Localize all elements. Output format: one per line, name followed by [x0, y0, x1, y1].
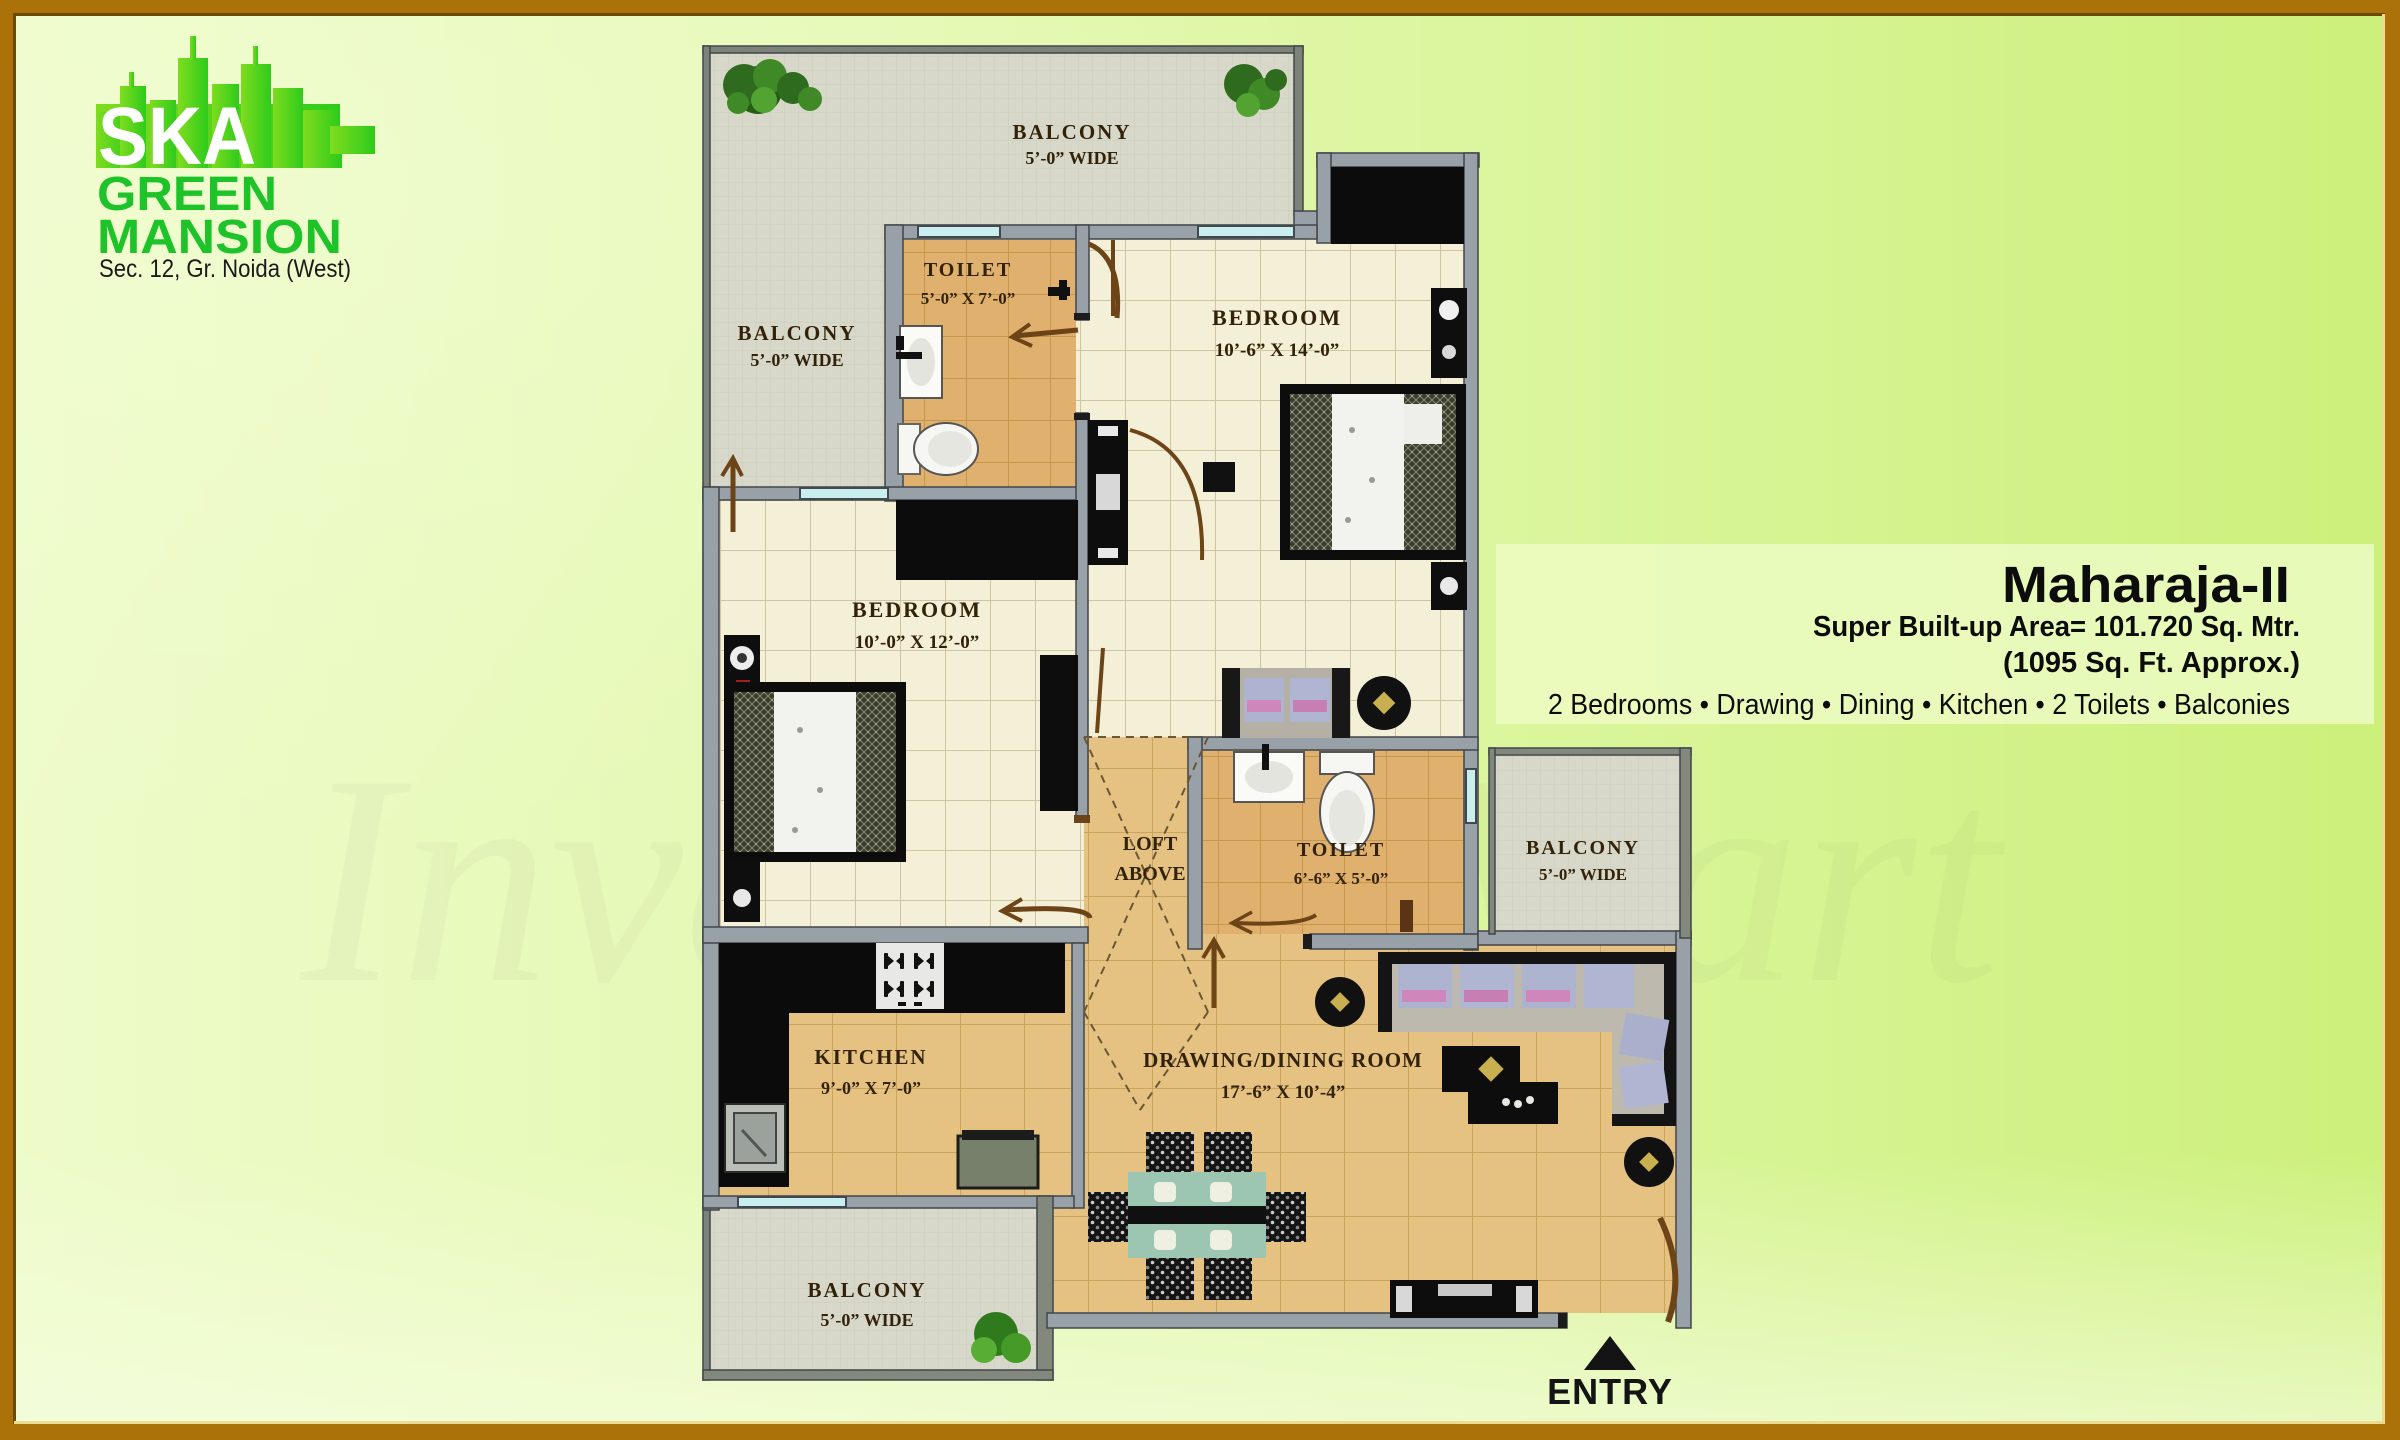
- svg-text:10’-6” X 14’-0”: 10’-6” X 14’-0”: [1215, 340, 1340, 361]
- svg-text:9’-0” X 7’-0”: 9’-0” X 7’-0”: [821, 1078, 921, 1098]
- svg-text:KITCHEN: KITCHEN: [814, 1045, 927, 1069]
- svg-text:LOFT: LOFT: [1123, 833, 1178, 855]
- svg-text:ENTRY: ENTRY: [1547, 1371, 1673, 1412]
- svg-text:5’-0” WIDE: 5’-0” WIDE: [1025, 148, 1118, 168]
- svg-text:17’-6” X 10’-4”: 17’-6” X 10’-4”: [1221, 1082, 1346, 1103]
- svg-text:ABOVE: ABOVE: [1114, 863, 1185, 885]
- svg-text:BALCONY: BALCONY: [737, 321, 856, 345]
- svg-text:6’-6” X 5’-0”: 6’-6” X 5’-0”: [1294, 869, 1388, 888]
- svg-text:DRAWING/DINING ROOM: DRAWING/DINING ROOM: [1143, 1048, 1423, 1072]
- svg-text:Maharaja-II: Maharaja-II: [2002, 556, 2290, 613]
- svg-text:TOILET: TOILET: [1297, 839, 1385, 861]
- svg-text:BALCONY: BALCONY: [1526, 837, 1640, 859]
- svg-text:BEDROOM: BEDROOM: [852, 597, 982, 622]
- svg-text:(1095 Sq. Ft. Approx.): (1095 Sq. Ft. Approx.): [2003, 647, 2300, 679]
- svg-text:TOILET: TOILET: [924, 259, 1012, 281]
- svg-text:5’-0” WIDE: 5’-0” WIDE: [1539, 865, 1627, 884]
- svg-text:BEDROOM: BEDROOM: [1212, 305, 1342, 330]
- svg-text:5’-0” WIDE: 5’-0” WIDE: [820, 1310, 913, 1330]
- svg-text:BALCONY: BALCONY: [1012, 120, 1131, 144]
- svg-text:2 Bedrooms • Drawing • Dining: 2 Bedrooms • Drawing • Dining • Kitchen …: [1548, 689, 2290, 721]
- svg-text:BALCONY: BALCONY: [807, 1278, 926, 1302]
- svg-text:5’-0” X 7’-0”: 5’-0” X 7’-0”: [921, 289, 1015, 308]
- svg-text:5’-0” WIDE: 5’-0” WIDE: [750, 350, 843, 370]
- svg-text:Sec. 12, Gr. Noida (West): Sec. 12, Gr. Noida (West): [99, 255, 351, 283]
- svg-text:10’-0” X 12’-0”: 10’-0” X 12’-0”: [855, 632, 980, 653]
- svg-text:Super Built-up Area= 101.720 S: Super Built-up Area= 101.720 Sq. Mtr.: [1813, 611, 2300, 643]
